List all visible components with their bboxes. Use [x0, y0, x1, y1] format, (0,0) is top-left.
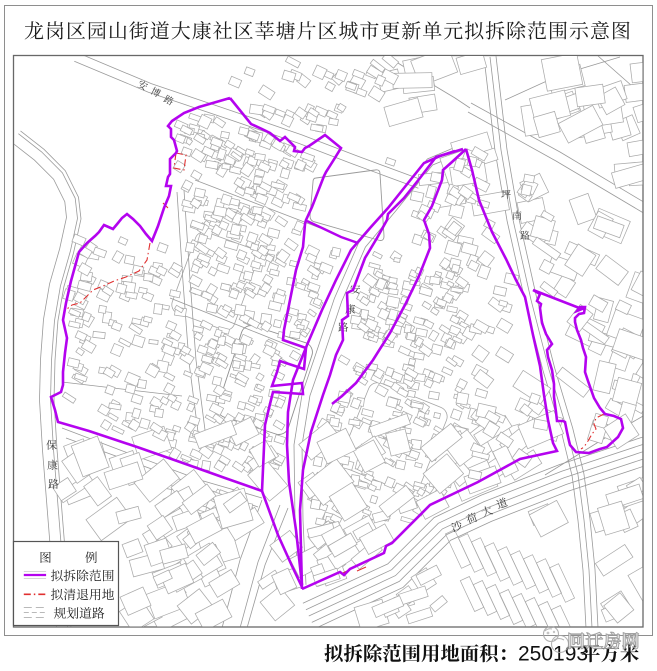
- svg-text:250193: 250193: [518, 643, 588, 666]
